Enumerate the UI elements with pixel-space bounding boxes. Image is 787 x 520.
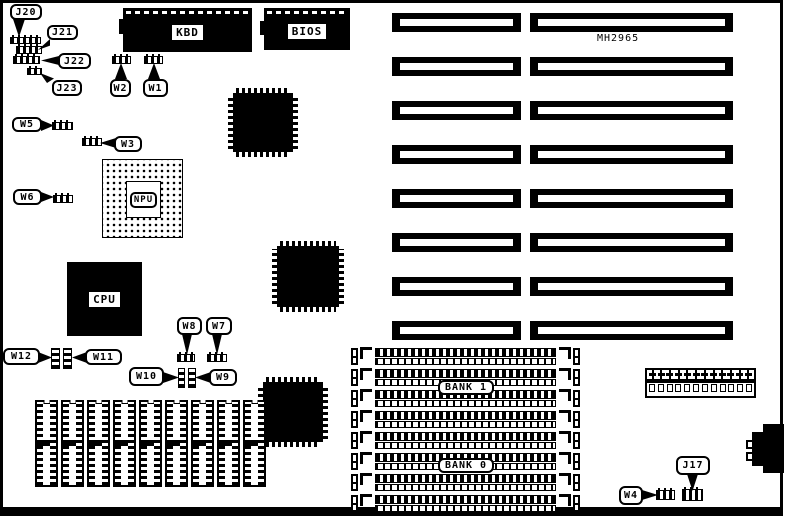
isa-slot-short-segment bbox=[392, 101, 521, 120]
power-hole bbox=[702, 384, 708, 392]
power-pin bbox=[658, 370, 665, 379]
jumper-w12-w11-a bbox=[51, 348, 60, 369]
power-hole bbox=[746, 384, 752, 392]
simm-contacts bbox=[375, 348, 556, 357]
qfp-pins-right bbox=[293, 96, 298, 149]
chip-kbd: KBD bbox=[123, 8, 252, 52]
isa-slot-short-segment bbox=[392, 145, 521, 164]
chip-cpu-label: CPU bbox=[89, 292, 120, 307]
isa-slot-short-segment bbox=[392, 321, 521, 340]
simm-end-right bbox=[573, 453, 580, 470]
jumper-w8 bbox=[177, 354, 195, 362]
qfp-chip-middle bbox=[272, 241, 344, 312]
power-pin bbox=[684, 370, 691, 379]
isa-slot-long-segment bbox=[530, 101, 733, 120]
npu-socket: NPU bbox=[102, 159, 183, 238]
isa-slot-long-segment bbox=[530, 57, 733, 76]
qfp-body bbox=[277, 246, 339, 307]
jumper-label-w7: W7 bbox=[206, 317, 232, 335]
bank0-label: BANK 0 bbox=[438, 458, 494, 473]
qfp-pins-bottom bbox=[266, 442, 320, 447]
qfp-chip-bottom bbox=[258, 377, 328, 447]
simm-end-left bbox=[351, 390, 358, 407]
simm-end-left bbox=[351, 474, 358, 491]
power-hole bbox=[684, 384, 690, 392]
jumper-label-j17: J17 bbox=[676, 456, 710, 475]
isa-slot-short-segment bbox=[392, 189, 521, 208]
simm-clip-left bbox=[360, 410, 372, 422]
qfp-chip-top bbox=[228, 88, 298, 157]
power-hole bbox=[711, 384, 717, 392]
simm-end-right bbox=[573, 369, 580, 386]
power-hole bbox=[693, 384, 699, 392]
chip-bios-label: BIOS bbox=[288, 24, 327, 39]
power-hole bbox=[737, 384, 743, 392]
din-connector-hole bbox=[746, 452, 754, 461]
npu-socket-center: NPU bbox=[126, 181, 161, 218]
simm-contacts-lower bbox=[375, 505, 556, 512]
simm-clip-left bbox=[360, 452, 372, 464]
chip-bios-notch bbox=[260, 21, 264, 35]
power-pin bbox=[727, 370, 734, 379]
chip-kbd-label: KBD bbox=[172, 25, 203, 40]
isa-slot-long-segment bbox=[530, 13, 733, 32]
simm-clip-right bbox=[559, 452, 571, 464]
jumper-w6 bbox=[53, 195, 73, 203]
simm-clip-left bbox=[360, 368, 372, 380]
dip-socket-area bbox=[35, 400, 266, 487]
simm-socket bbox=[351, 410, 580, 429]
simm-clip-right bbox=[559, 410, 571, 422]
din-connector-flange bbox=[752, 432, 784, 466]
isa-slot-long-segment bbox=[530, 277, 733, 296]
simm-end-right bbox=[573, 411, 580, 428]
simm-end-left bbox=[351, 453, 358, 470]
isa-slot-row bbox=[392, 233, 733, 252]
simm-contacts-lower bbox=[375, 442, 556, 449]
isa-slot-area bbox=[392, 13, 733, 340]
jumper-label-w12: W12 bbox=[3, 348, 40, 365]
jumper-label-w9: W9 bbox=[209, 369, 237, 386]
qfp-body bbox=[233, 93, 293, 152]
dip-socket-middle bbox=[89, 440, 108, 446]
dip-socket-middle bbox=[193, 440, 212, 446]
jumper-label-j22: J22 bbox=[58, 53, 91, 69]
jumper-label-w2: W2 bbox=[110, 79, 131, 97]
dip-socket-notch bbox=[251, 400, 258, 404]
simm-clip-right bbox=[559, 494, 571, 506]
jumper-w7 bbox=[207, 354, 227, 362]
simm-contacts-lower bbox=[375, 421, 556, 428]
simm-clip-right bbox=[559, 389, 571, 401]
connector-j22 bbox=[13, 56, 40, 64]
power-hole bbox=[720, 384, 726, 392]
simm-clip-left bbox=[360, 389, 372, 401]
isa-slot-long-segment bbox=[530, 233, 733, 252]
jumper-w4 bbox=[656, 490, 675, 500]
isa-slot-long-segment bbox=[530, 321, 733, 340]
isa-slot-row bbox=[392, 277, 733, 296]
isa-slot-long-segment bbox=[530, 189, 733, 208]
qfp-pins-bottom bbox=[280, 307, 336, 312]
dip-socket-notch bbox=[121, 400, 128, 404]
simm-end-left bbox=[351, 495, 358, 512]
isa-slot-row bbox=[392, 13, 733, 32]
simm-clip-right bbox=[559, 473, 571, 485]
dip-socket-notch bbox=[199, 400, 206, 404]
chip-kbd-notch bbox=[119, 19, 123, 34]
dip-socket-middle bbox=[141, 440, 160, 446]
dip-socket bbox=[243, 400, 266, 487]
qfp-pins-bottom bbox=[236, 152, 290, 157]
simm-socket bbox=[351, 494, 580, 513]
qfp-pins-right bbox=[323, 385, 328, 439]
jumper-label-w3: W3 bbox=[114, 136, 142, 152]
simm-end-left bbox=[351, 369, 358, 386]
dip-socket-notch bbox=[147, 400, 154, 404]
power-connector bbox=[645, 368, 756, 398]
simm-contacts bbox=[375, 411, 556, 420]
power-pin bbox=[736, 370, 743, 379]
chip-cpu: CPU bbox=[67, 262, 142, 336]
dip-socket-middle bbox=[115, 440, 134, 446]
simm-end-right bbox=[573, 348, 580, 365]
simm-socket bbox=[351, 347, 580, 366]
jumper-w12-w11-b bbox=[63, 348, 72, 369]
din-connector-hole bbox=[746, 440, 754, 449]
simm-end-left bbox=[351, 432, 358, 449]
dip-socket bbox=[35, 400, 58, 487]
dip-socket bbox=[139, 400, 162, 487]
power-pin bbox=[719, 370, 726, 379]
dip-socket bbox=[191, 400, 214, 487]
power-pin bbox=[649, 370, 656, 379]
simm-clip-right bbox=[559, 368, 571, 380]
dip-socket-middle bbox=[63, 440, 82, 446]
simm-contacts bbox=[375, 432, 556, 441]
simm-end-right bbox=[573, 390, 580, 407]
simm-contacts-lower bbox=[375, 358, 556, 365]
simm-end-right bbox=[573, 495, 580, 512]
bank1-label: BANK 1 bbox=[438, 380, 494, 395]
jumper-w10-w9-b bbox=[188, 368, 196, 388]
power-pin bbox=[693, 370, 700, 379]
jumper-label-w6: W6 bbox=[13, 189, 42, 205]
isa-slot-short-segment bbox=[392, 57, 521, 76]
power-pin bbox=[710, 370, 717, 379]
simm-clip-left bbox=[360, 494, 372, 506]
simm-contacts-lower bbox=[375, 400, 556, 407]
jumper-label-w11: W11 bbox=[85, 349, 122, 365]
power-hole bbox=[667, 384, 673, 392]
simm-clip-right bbox=[559, 431, 571, 443]
jumper-label-w5: W5 bbox=[12, 117, 42, 132]
jumper-w10-w9-a bbox=[178, 368, 185, 388]
jumper-label-w8: W8 bbox=[177, 317, 202, 335]
dip-socket bbox=[87, 400, 110, 487]
chip-npu-label: NPU bbox=[130, 192, 157, 208]
jumper-label-w1: W1 bbox=[143, 79, 168, 97]
qfp-pins-right bbox=[339, 249, 344, 304]
isa-slot-short-segment bbox=[392, 277, 521, 296]
dip-socket bbox=[165, 400, 188, 487]
isa-slot-row bbox=[392, 101, 733, 120]
jumper-w3 bbox=[82, 138, 102, 146]
dip-socket-notch bbox=[43, 400, 50, 404]
isa-slot-short-segment bbox=[392, 233, 521, 252]
simm-end-left bbox=[351, 411, 358, 428]
connector-j23 bbox=[27, 68, 42, 75]
chip-bios: BIOS bbox=[264, 8, 350, 50]
power-hole bbox=[728, 384, 734, 392]
simm-socket bbox=[351, 473, 580, 492]
dip-socket-middle bbox=[245, 440, 264, 446]
jumper-w2 bbox=[112, 56, 131, 64]
qfp-body bbox=[263, 382, 323, 442]
jumper-label-j20: J20 bbox=[10, 4, 42, 20]
dip-socket-notch bbox=[95, 400, 102, 404]
simm-end-right bbox=[573, 474, 580, 491]
isa-slot-row bbox=[392, 145, 733, 164]
simm-end-right bbox=[573, 432, 580, 449]
jumper-label-j21: J21 bbox=[47, 25, 78, 40]
simm-clip-right bbox=[559, 347, 571, 359]
isa-slot-row bbox=[392, 57, 733, 76]
simm-socket bbox=[351, 431, 580, 450]
power-pin bbox=[745, 370, 752, 379]
power-connector-pins bbox=[647, 370, 754, 383]
simm-end-left bbox=[351, 348, 358, 365]
power-hole bbox=[649, 384, 655, 392]
simm-contacts bbox=[375, 369, 556, 378]
power-hole bbox=[658, 384, 664, 392]
isa-slot-short-segment bbox=[392, 13, 521, 32]
jumper-w5 bbox=[52, 122, 73, 130]
dip-socket-notch bbox=[225, 400, 232, 404]
connector-j21 bbox=[16, 46, 42, 54]
dip-socket bbox=[217, 400, 240, 487]
isa-slot-long-segment bbox=[530, 145, 733, 164]
power-pin bbox=[701, 370, 708, 379]
jumper-label-w4: W4 bbox=[619, 486, 643, 505]
dip-socket-middle bbox=[219, 440, 238, 446]
jumper-label-w10: W10 bbox=[129, 367, 164, 386]
simm-contacts-lower bbox=[375, 484, 556, 491]
simm-clip-left bbox=[360, 473, 372, 485]
dip-socket bbox=[61, 400, 84, 487]
simm-contacts bbox=[375, 474, 556, 483]
connector-j20 bbox=[10, 37, 41, 44]
isa-slot-row bbox=[392, 189, 733, 208]
simm-clip-left bbox=[360, 347, 372, 359]
dip-socket-notch bbox=[69, 400, 76, 404]
power-hole bbox=[675, 384, 681, 392]
isa-slot-row bbox=[392, 321, 733, 340]
power-pin bbox=[666, 370, 673, 379]
power-pin bbox=[675, 370, 682, 379]
simm-contacts bbox=[375, 495, 556, 504]
jumper-label-j23: J23 bbox=[52, 80, 82, 96]
simm-clip-left bbox=[360, 431, 372, 443]
jumper-w1 bbox=[144, 56, 163, 64]
dip-socket-notch bbox=[173, 400, 180, 404]
power-connector-holes bbox=[647, 383, 754, 393]
simm-socket-area bbox=[351, 347, 580, 513]
dip-socket-middle bbox=[37, 440, 56, 446]
dip-socket bbox=[113, 400, 136, 487]
dip-socket-middle bbox=[167, 440, 186, 446]
